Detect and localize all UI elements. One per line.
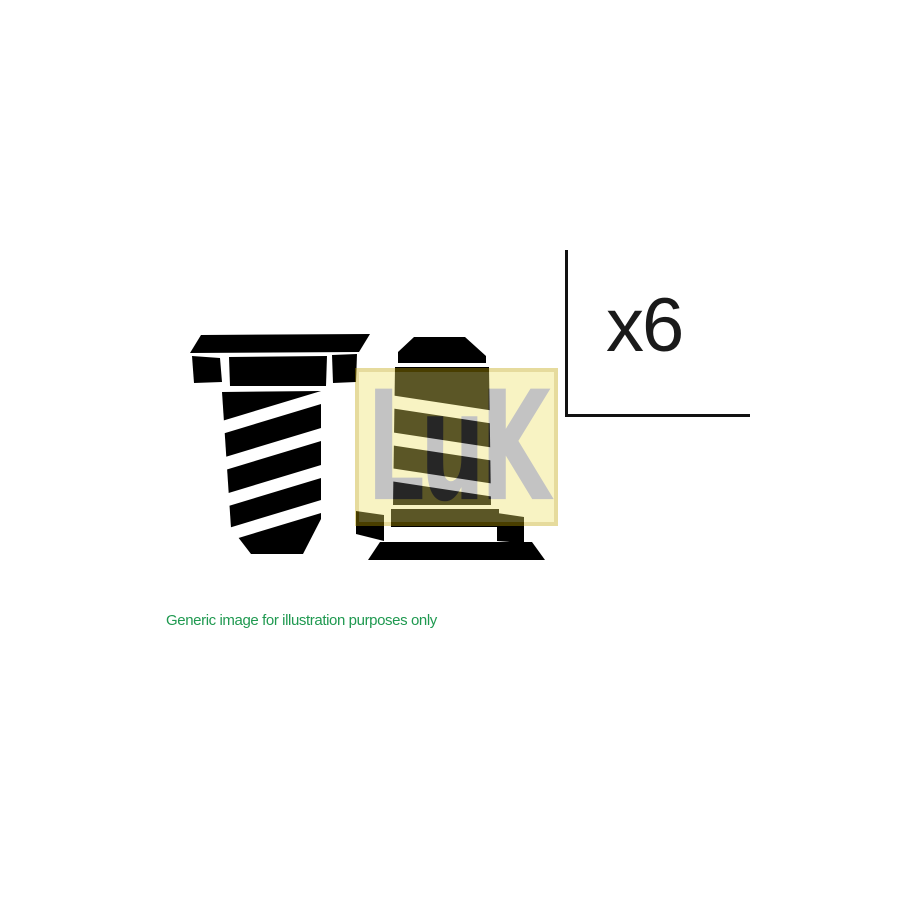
bolt-left	[190, 334, 370, 554]
luk-logo-text: LuK	[367, 371, 546, 523]
quantity-bracket-horizontal-line	[565, 414, 750, 417]
quantity-bracket-vertical-line	[565, 250, 568, 417]
disclaimer-text: Generic image for illustration purposes …	[166, 612, 437, 629]
product-image: LuK x6 Generic image for illustration pu…	[0, 0, 900, 900]
luk-logo: LuK	[355, 368, 558, 526]
quantity-label: x6	[606, 288, 682, 364]
